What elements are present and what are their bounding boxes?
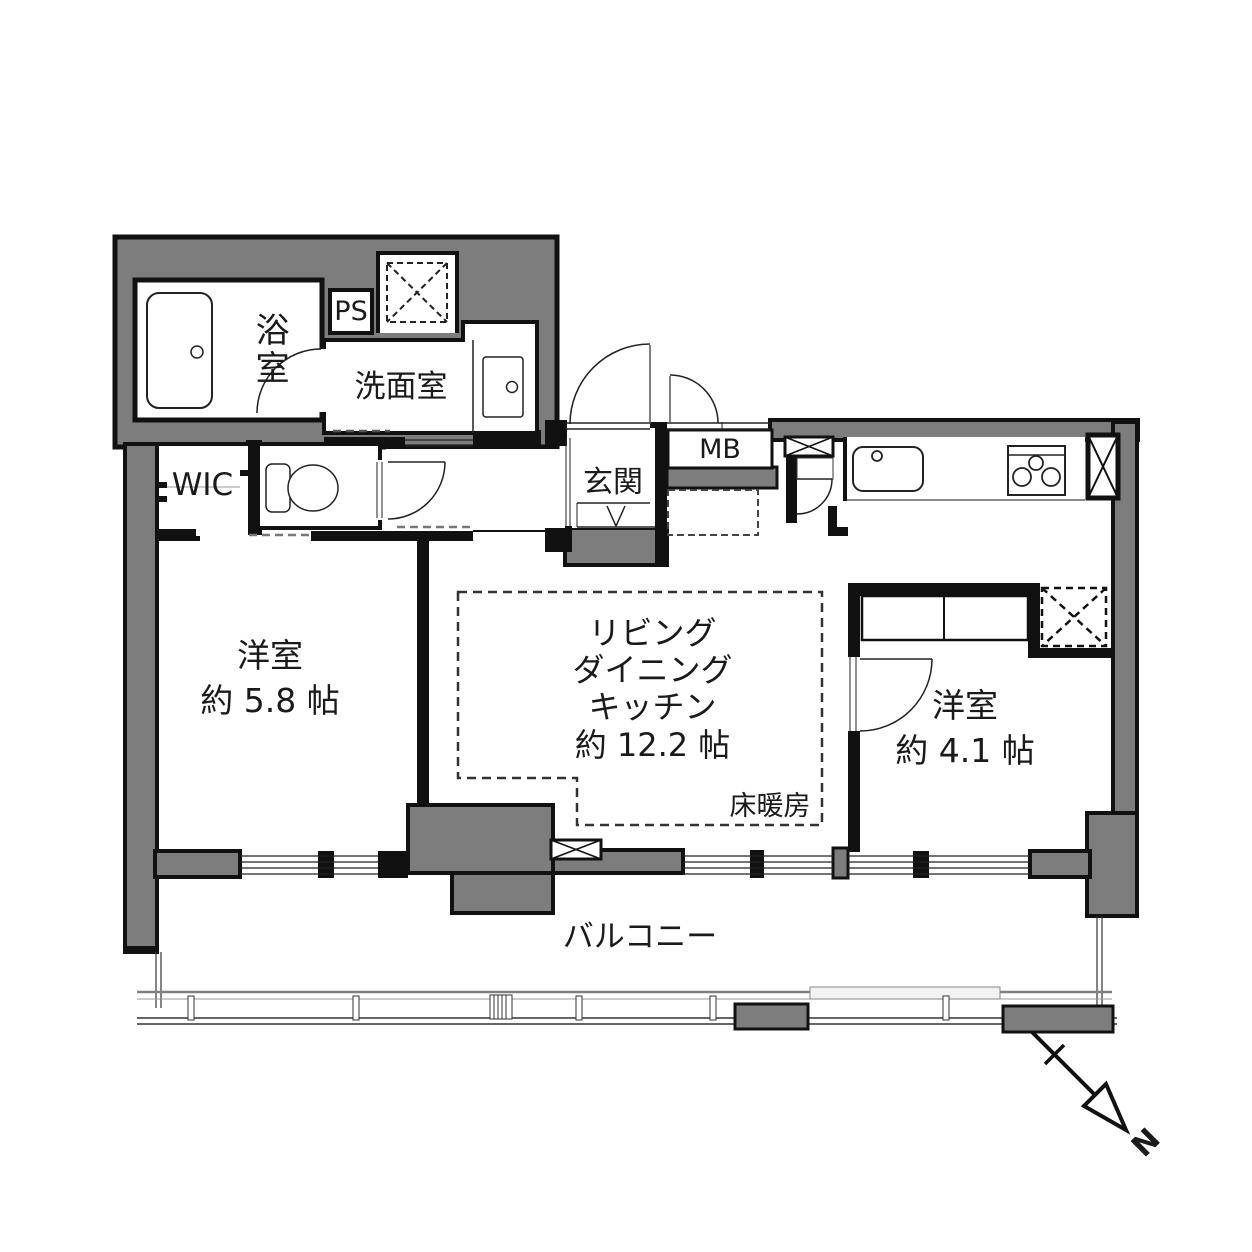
wic-label: WIC (165, 468, 240, 503)
wall-niche-bottom (1028, 648, 1114, 658)
wall-right-corner (1087, 813, 1137, 916)
mb-door (667, 375, 770, 430)
wall-bump-lower (452, 873, 553, 913)
wall-left-column (125, 444, 157, 950)
room-corridor (386, 449, 565, 528)
entrance-label: 玄関 (573, 466, 653, 500)
ldk-label-3: キッチン (540, 690, 765, 726)
wall-bedroom-right-left-a (848, 583, 860, 657)
wall-kitchen-corner (828, 506, 848, 536)
closet-icon (862, 596, 1028, 640)
wall-entrance-right (655, 422, 667, 565)
wall-bedroom-right-left-b (848, 731, 860, 852)
wall-window-stub (833, 848, 848, 878)
wall-bedroom-left-window-pier (155, 851, 240, 877)
wall-under-mb (667, 467, 777, 488)
railing-solid-a (735, 1004, 808, 1029)
ldk-size-label: 約 12.2 帖 (540, 728, 765, 764)
bedroom-right-name: 洋室 (900, 688, 1030, 725)
balcony-label: バルコニー (550, 920, 730, 955)
wall-corridor-corner (545, 526, 572, 552)
floor-heating-label: 床暖房 (715, 792, 825, 822)
opening-bedroom-right-door (846, 657, 862, 731)
bedroom-right-size: 約 4.1 帖 (885, 733, 1045, 770)
opening-wic (196, 527, 248, 536)
balcony-divider-right (1097, 916, 1102, 1008)
xbox-mb-icon (785, 437, 833, 456)
wall-bedroom-left-top-b (311, 531, 473, 541)
window-bedroom-left (240, 856, 378, 874)
meter-box-label: MB (680, 435, 760, 465)
bedroom-left-size: 約 5.8 帖 (180, 683, 360, 720)
xbox-kitchen-icon (1088, 435, 1118, 498)
wall-block-corner (545, 420, 567, 446)
entrance-hall-dashed (668, 490, 758, 535)
window-jamb-left (378, 851, 408, 878)
shaft-dashed-bedroom-icon (1042, 588, 1106, 646)
entrance-door (565, 344, 650, 429)
kitchen-entry-door (797, 458, 833, 514)
railing-posts (188, 996, 949, 1020)
balcony-divider-left (156, 952, 161, 1008)
railing-panel (810, 987, 1000, 999)
bathroom-label: 浴室 (250, 312, 288, 388)
xbox-bump-icon (551, 840, 601, 859)
wall-bedroom-right-top (848, 583, 1040, 596)
stove-icon (1008, 446, 1065, 495)
railing-hatch (490, 995, 512, 1019)
wall-right-corner-band (1030, 851, 1090, 877)
wall-xbox-strip (786, 455, 797, 523)
wall-left-column-cap (123, 946, 159, 954)
floorplan: 浴室 PS 洗面室 WIC 玄関 MB リビング ダイニング キッチン 約 12… (0, 0, 1252, 1252)
wall-bedroom-ldk-divider (417, 541, 429, 807)
kitchen-counter-left-edge (843, 437, 847, 501)
ldk-label-1: リビング (540, 616, 765, 652)
ldk-label-2: ダイニング (540, 653, 765, 689)
toilet-icon (266, 464, 338, 512)
north-arrow-icon (1032, 1032, 1126, 1130)
bathtub-icon (147, 293, 212, 408)
kitchen-sink-icon (853, 447, 923, 491)
pipe-space-label: PS (331, 297, 371, 327)
washroom-label: 洗面室 (341, 370, 461, 405)
railing-solid-b (1003, 1006, 1113, 1032)
bedroom-left-name: 洋室 (195, 638, 345, 675)
wall-under-entrance (565, 528, 667, 565)
opening-bathroom-door (316, 349, 328, 412)
wall-bump-main (408, 805, 553, 873)
window-bedroom-right (848, 856, 1030, 874)
wall-niche-left (1028, 583, 1040, 650)
